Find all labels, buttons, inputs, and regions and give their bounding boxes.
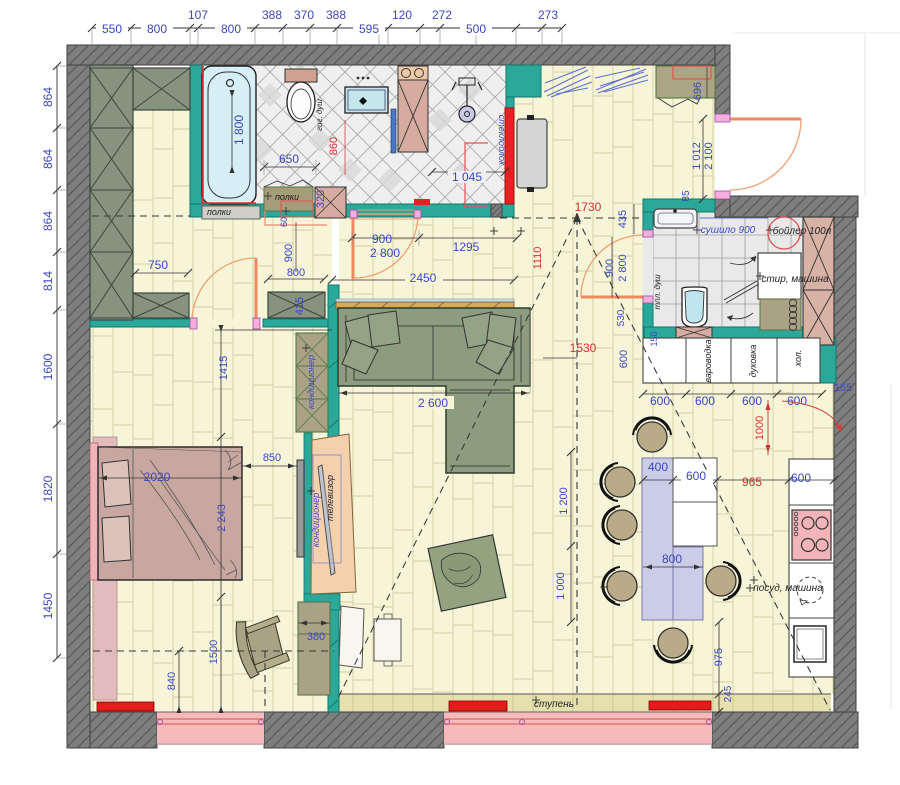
svg-text:полки: полки xyxy=(275,192,299,202)
svg-text:духовка: духовка xyxy=(748,345,758,378)
svg-text:380: 380 xyxy=(307,631,325,643)
svg-text:800: 800 xyxy=(662,552,682,566)
svg-text:2020: 2020 xyxy=(144,470,171,484)
svg-text:550: 550 xyxy=(102,22,122,36)
svg-text:600: 600 xyxy=(695,394,715,408)
svg-text:415: 415 xyxy=(294,297,306,315)
svg-text:1110: 1110 xyxy=(532,247,544,270)
svg-text:полки: полки xyxy=(207,207,231,217)
svg-text:1530: 1530 xyxy=(570,341,597,355)
svg-text:864: 864 xyxy=(41,211,55,231)
svg-text:2 600: 2 600 xyxy=(418,396,448,410)
svg-text:107: 107 xyxy=(188,8,208,22)
svg-text:900: 900 xyxy=(604,259,616,277)
svg-text:2 100: 2 100 xyxy=(703,142,715,170)
svg-text:900: 900 xyxy=(372,232,392,246)
svg-text:965: 965 xyxy=(742,475,762,489)
svg-text:сушило 900: сушило 900 xyxy=(701,225,756,236)
svg-text:388: 388 xyxy=(262,8,282,22)
svg-text:370: 370 xyxy=(294,8,314,22)
svg-text:кондиционер: кондиционер xyxy=(311,493,321,547)
svg-text:бойлер 100л: бойлер 100л xyxy=(773,225,832,237)
svg-text:85: 85 xyxy=(681,190,692,202)
svg-text:60: 60 xyxy=(279,217,289,227)
svg-text:600: 600 xyxy=(650,394,670,408)
svg-text:864: 864 xyxy=(41,87,55,107)
svg-text:вароводка: вароводка xyxy=(703,339,713,382)
svg-text:800: 800 xyxy=(221,22,241,36)
svg-text:1 800: 1 800 xyxy=(232,115,246,145)
svg-text:2 800: 2 800 xyxy=(617,254,629,282)
svg-text:1730: 1730 xyxy=(575,200,602,214)
svg-text:кондиционер: кондиционер xyxy=(306,355,316,409)
svg-text:696: 696 xyxy=(692,82,704,100)
svg-text:600: 600 xyxy=(618,350,630,368)
svg-text:гиг. душ: гиг. душ xyxy=(315,99,324,131)
svg-text:600: 600 xyxy=(742,394,762,408)
svg-text:320: 320 xyxy=(315,190,327,208)
svg-text:2 800: 2 800 xyxy=(370,246,400,260)
svg-text:165: 165 xyxy=(834,382,852,394)
svg-text:900: 900 xyxy=(283,244,295,262)
svg-text:975: 975 xyxy=(713,648,725,666)
svg-text:ступень: ступень xyxy=(534,699,574,710)
svg-text:245: 245 xyxy=(723,685,734,702)
svg-text:150: 150 xyxy=(649,331,659,346)
svg-text:750: 750 xyxy=(148,258,168,272)
svg-text:1 012: 1 012 xyxy=(691,142,703,170)
svg-text:400: 400 xyxy=(648,460,668,474)
svg-text:1600: 1600 xyxy=(41,353,55,380)
svg-text:800: 800 xyxy=(287,267,305,279)
svg-text:500: 500 xyxy=(466,22,486,36)
svg-text:посуд, машина: посуд, машина xyxy=(753,583,823,594)
svg-text:860: 860 xyxy=(328,137,340,155)
svg-text:595: 595 xyxy=(359,22,379,36)
svg-text:1415: 1415 xyxy=(218,356,230,380)
svg-text:тпл. душ: тпл. душ xyxy=(653,274,662,309)
svg-text:1820: 1820 xyxy=(41,475,55,502)
svg-text:телевизор: телевизор xyxy=(325,475,335,521)
svg-text:1295: 1295 xyxy=(453,240,480,254)
svg-text:хол.: хол. xyxy=(793,350,803,368)
svg-text:273: 273 xyxy=(538,8,558,22)
svg-text:1 045: 1 045 xyxy=(452,170,482,184)
svg-text:650: 650 xyxy=(279,152,299,166)
svg-text:2 243: 2 243 xyxy=(216,504,228,532)
svg-text:1500: 1500 xyxy=(208,640,220,664)
svg-text:стеклоблок: стеклоблок xyxy=(497,115,507,166)
svg-text:1 200: 1 200 xyxy=(558,487,570,515)
svg-text:2450: 2450 xyxy=(410,271,437,285)
svg-text:840: 840 xyxy=(166,672,178,690)
svg-text:1450: 1450 xyxy=(41,592,55,619)
svg-text:800: 800 xyxy=(147,22,167,36)
svg-text:600: 600 xyxy=(686,469,706,483)
svg-text:814: 814 xyxy=(41,271,55,291)
svg-text:388: 388 xyxy=(326,8,346,22)
svg-text:600: 600 xyxy=(791,471,811,485)
svg-text:1000: 1000 xyxy=(754,416,766,440)
svg-text:850: 850 xyxy=(263,452,281,464)
svg-text:1 000: 1 000 xyxy=(555,572,567,600)
svg-text:272: 272 xyxy=(432,8,452,22)
svg-text:530: 530 xyxy=(616,309,627,326)
svg-text:435: 435 xyxy=(617,210,629,228)
svg-text:600: 600 xyxy=(787,394,807,408)
svg-text:120: 120 xyxy=(392,8,412,22)
svg-text:864: 864 xyxy=(41,149,55,169)
svg-text:стир, машина: стир, машина xyxy=(761,274,829,285)
